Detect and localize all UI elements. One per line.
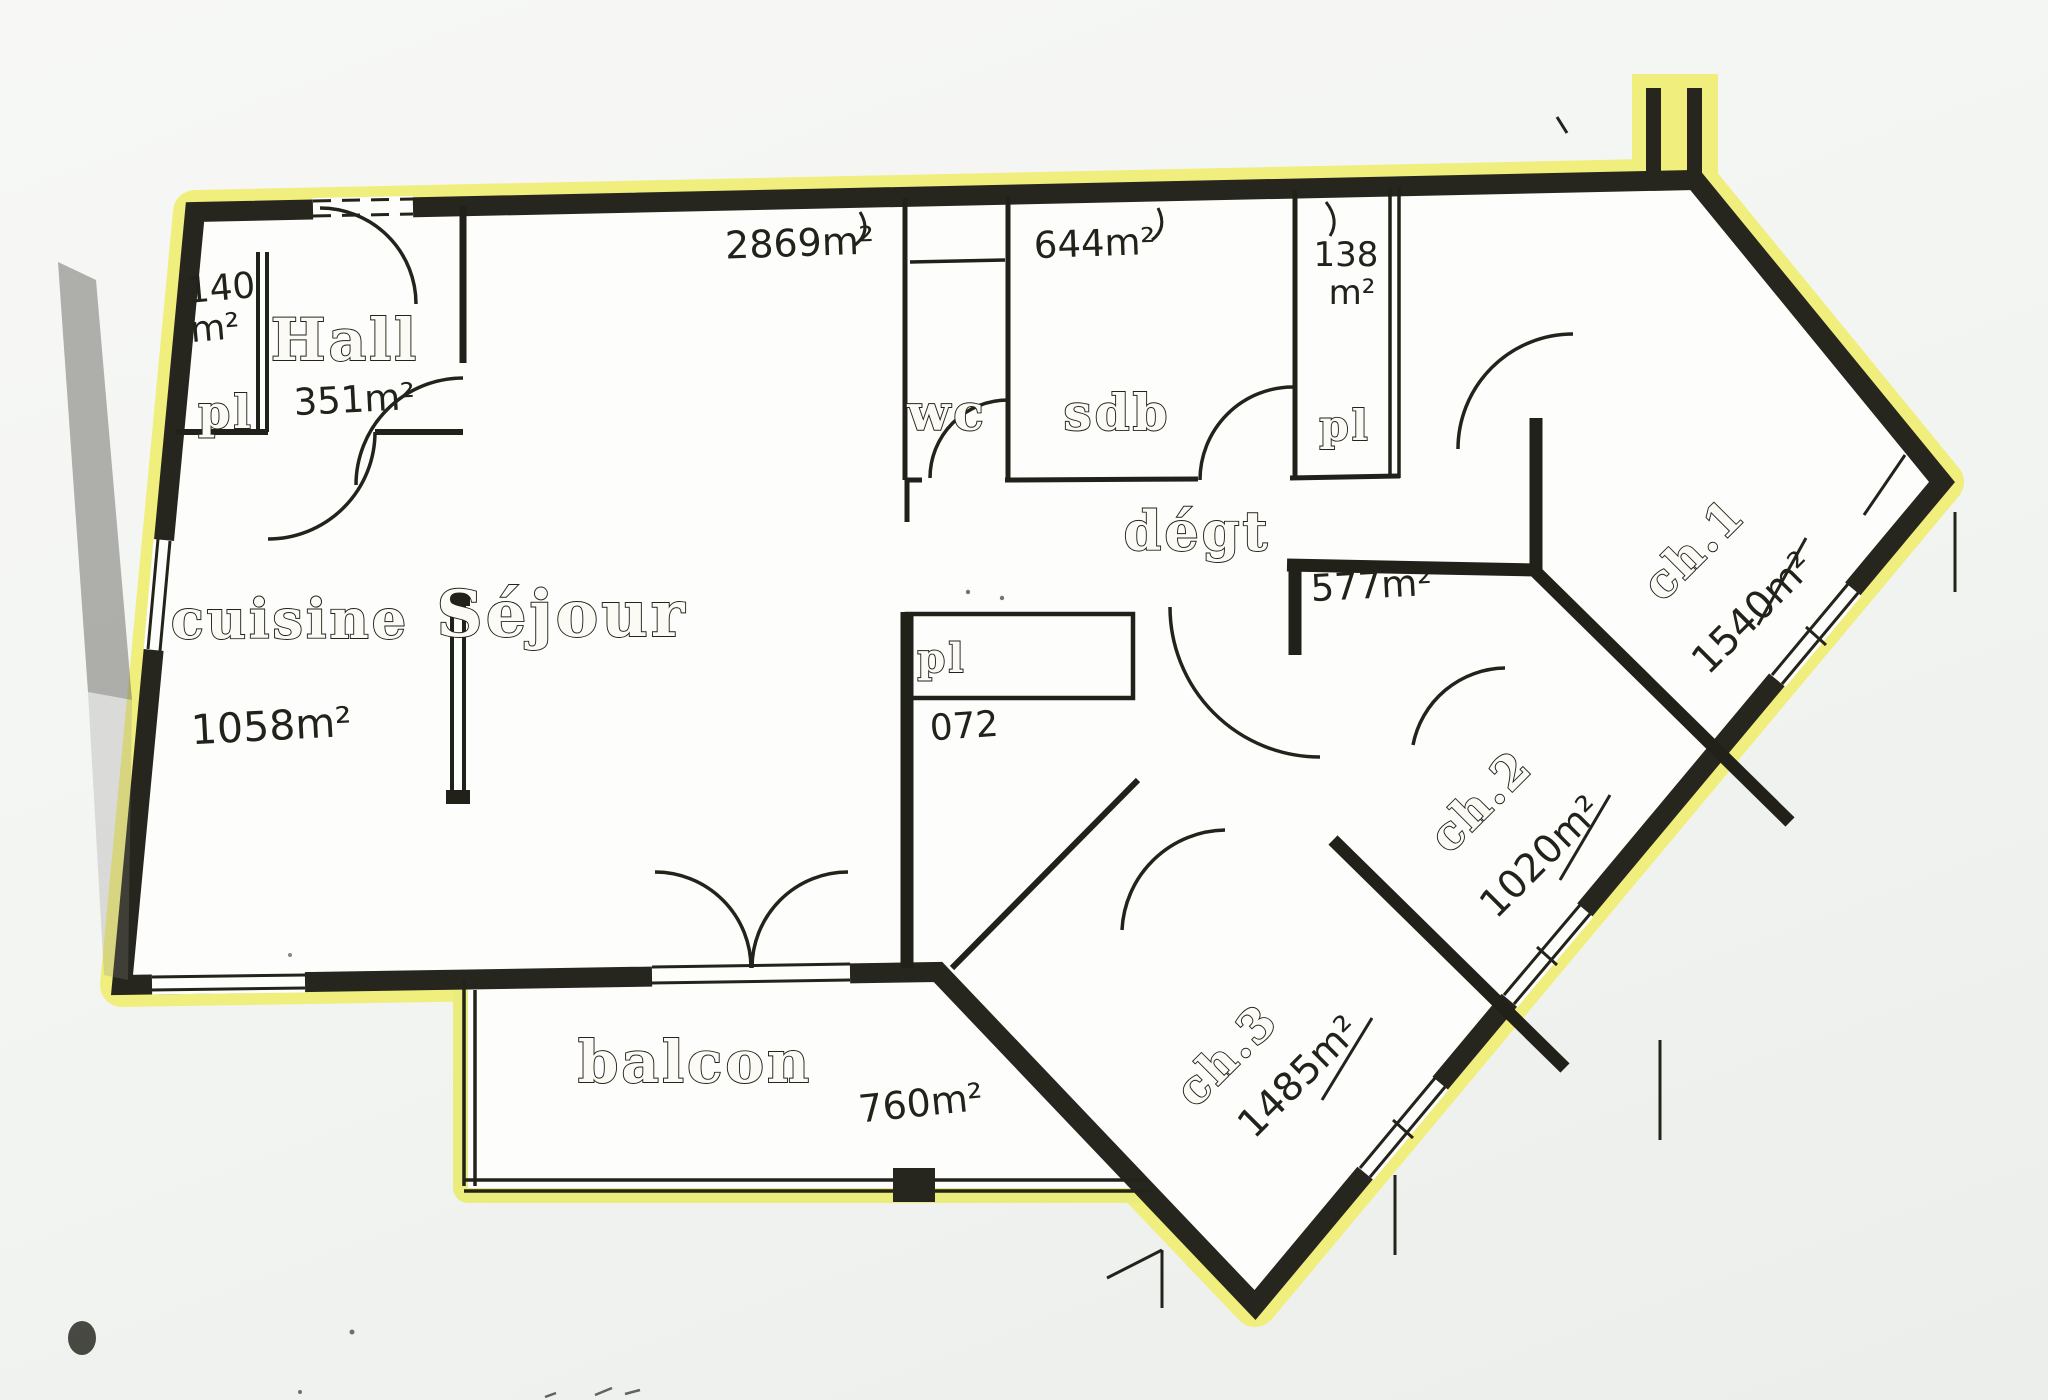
- room-label-balcon: balcon: [578, 1028, 812, 1096]
- area-cuisine: 1058m²: [190, 698, 353, 754]
- floor-plan-svg: Hall pl cuisine Séjour wc sdb pl dégt pl…: [0, 0, 2048, 1400]
- room-label-entry-closet: pl: [198, 385, 254, 439]
- room-label-cuisine: cuisine: [171, 587, 409, 651]
- room-label-degagement: dégt: [1124, 499, 1271, 563]
- room-label-closet-middle: pl: [917, 635, 966, 682]
- area-closet-top-right-value: 138: [1314, 235, 1379, 275]
- floor-plan-photo: Hall pl cuisine Séjour wc sdb pl dégt pl…: [0, 0, 2048, 1400]
- area-entry-closet-value: 140: [185, 265, 257, 312]
- area-entry-closet-unit: m²: [189, 306, 242, 351]
- room-label-wc: wc: [906, 383, 987, 442]
- area-closet-top-right-unit: m²: [1329, 273, 1376, 313]
- room-label-hall: Hall: [271, 306, 419, 374]
- room-label-sdb: sdb: [1063, 383, 1170, 442]
- area-degagement: 577m²: [1310, 561, 1434, 610]
- room-label-closet-top-right: pl: [1319, 401, 1370, 450]
- area-closet-middle: 072: [928, 704, 999, 750]
- area-sejour: 2869m²: [724, 218, 874, 267]
- area-sdb: 644m²: [1033, 220, 1156, 267]
- area-hall: 351m²: [293, 375, 417, 424]
- room-label-sejour: Séjour: [436, 577, 687, 652]
